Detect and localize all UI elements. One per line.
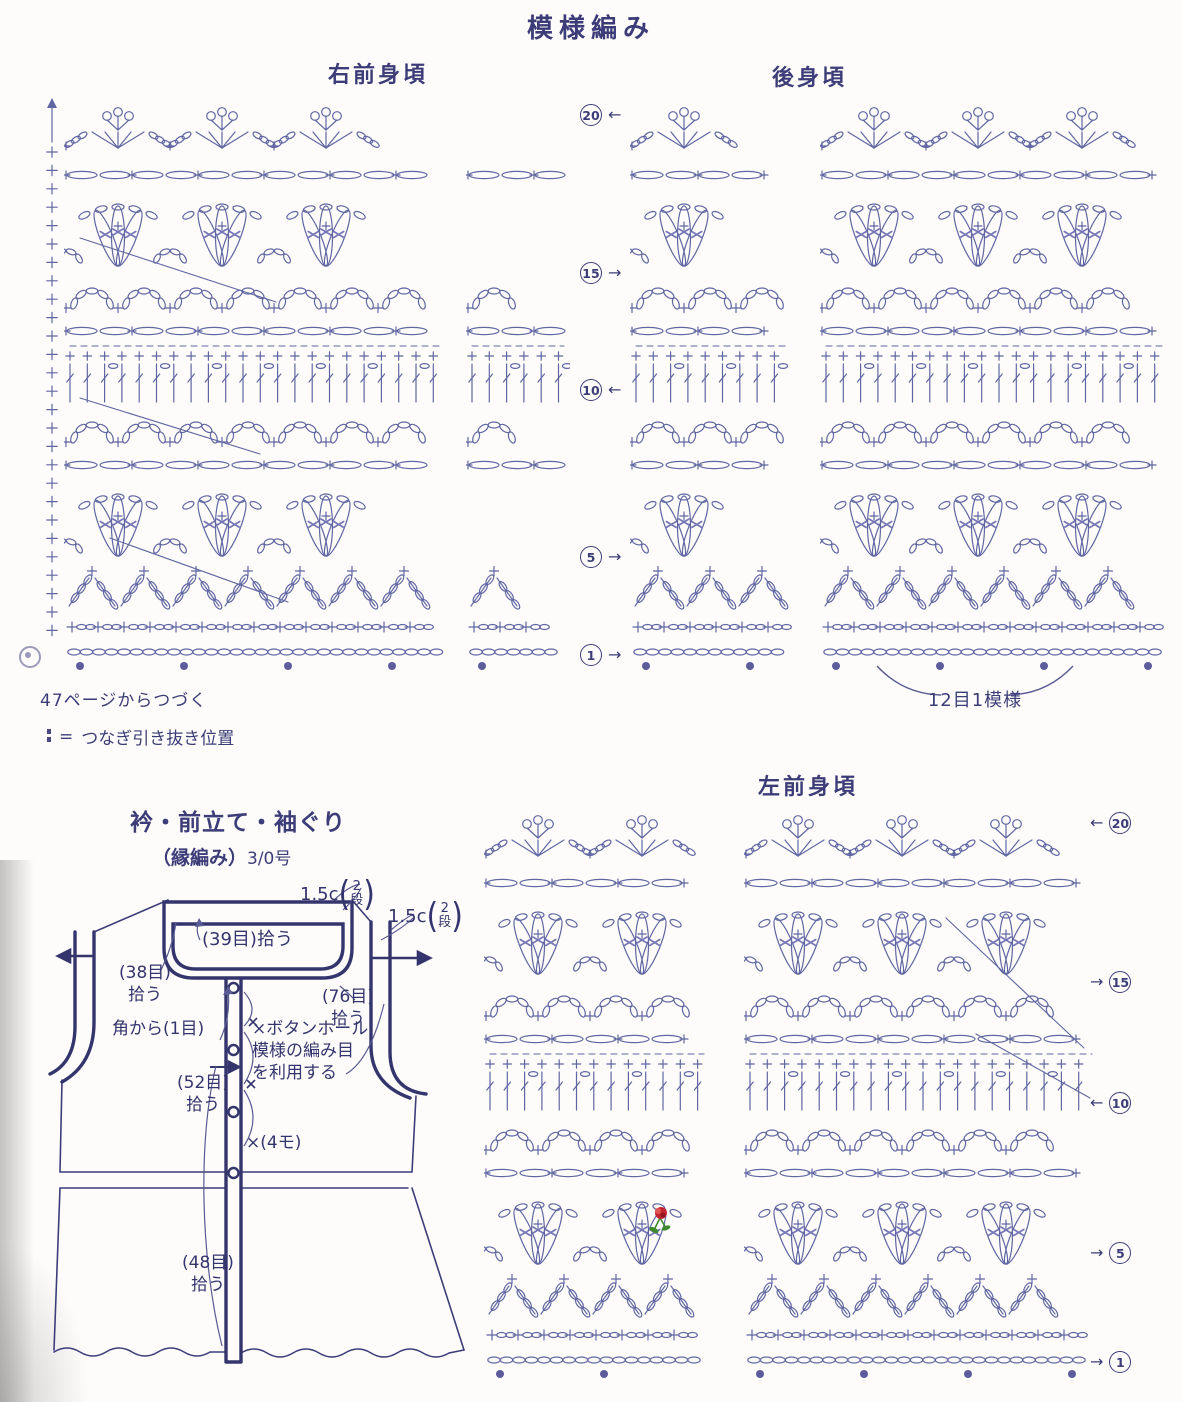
neck-band-dan: 段 [350,894,363,908]
arrow-left-icon: ← [608,107,621,123]
pickup-39-label: (39目)拾う [202,928,293,951]
row-number: 20 [1109,812,1131,834]
row-number: 1 [1109,1351,1131,1373]
from-corner-label: 角から(1目) [112,1018,204,1040]
pickup-38-count: (38目) [119,963,171,983]
pickup-48-verb: 拾う [191,1275,225,1295]
row-marker-15: 15→ [580,262,621,284]
arrow-right-icon: → [608,549,621,565]
section-label-left-front: 左前身頃 [758,769,858,801]
paren-open: ( [427,901,439,932]
row-number: 20 [580,104,602,126]
pickup-48-label: (48目) 拾う [168,1252,248,1296]
arrow-right-icon: → [1090,1245,1103,1261]
row-marker-10: ←10 [1090,1092,1131,1114]
pickup-52-label: (52目) 拾う [166,1072,240,1116]
row-number: 15 [580,262,602,284]
right-arrowhead-icon [418,952,430,964]
repeat-note: 12目1模様 [855,686,1095,712]
row-start-mark [19,646,41,668]
arm-band-size: 1.5c(2段) [388,902,463,931]
row-number: 10 [580,379,602,401]
arrow-right-icon: → [608,647,621,663]
neck-band-size: 1.5c(2段) [300,880,375,909]
section-label-right-front: 右前身頃 [328,57,428,89]
crochet-chart-back [626,86,1172,690]
paren-close: ) [363,879,375,910]
arrow-left-icon: ← [1090,1095,1103,1111]
row-marker-10: 10← [580,379,621,401]
arm-band-cm: 1.5c [388,906,427,927]
arrow-right-icon: → [1090,1354,1103,1370]
placket-arrowhead-icon [229,1062,239,1072]
edging-subtitle: （縁編み）3/0号 [152,843,291,870]
button-icon [229,1045,239,1055]
buttonhole-line2: 模様の編み目 [252,1041,354,1061]
row-marker-1: 1→ [580,644,621,666]
row-marker-1: →1 [1090,1351,1131,1373]
page-title: 模様編み [0,8,1182,45]
row-markers-bottom: ←20→15←10→5→1 [1090,798,1174,1402]
buttonhole-line1: ボタンホール [266,1019,368,1039]
row-markers-top: 20←15→10←5→1→ [580,86,644,690]
arrow-right-icon: → [1090,974,1103,990]
row-marker-20: 20← [580,104,621,126]
row-number: 5 [580,546,602,568]
legend-row: = つなぎ引き抜き位置 [46,724,234,749]
paren-close: ) [451,901,463,932]
row-number: 15 [1109,971,1131,993]
buttonhole-line3: を利用する [252,1063,337,1083]
arm-band-dan: 段 [438,916,451,930]
buttonhole-note: ×ボタンホール 模様の編み目 を利用する [252,1018,368,1084]
crochet-chart-right-front [38,86,578,690]
pickup-52-count: (52目) [177,1073,229,1093]
row-marker-5: 5→ [580,546,621,568]
legend-equals: = [59,727,73,747]
x-mark: × [252,1019,266,1039]
continued-note: 47ページからつづく [40,686,207,711]
neck-band-cm: 1.5c [300,884,339,905]
row-number: 10 [1109,1092,1131,1114]
arrow-left-icon: ← [608,382,621,398]
legend-text: つなぎ引き抜き位置 [81,724,234,749]
crochet-chart-left-front [476,798,1110,1402]
button-icon [229,1168,239,1178]
edging-hook-size: 3/0号 [247,849,291,869]
pickup-38-verb: 拾う [128,985,162,1005]
button-count-label: ×(4モ) [246,1132,301,1154]
left-arrowhead-icon [58,950,70,962]
join-mark-icon [46,729,51,744]
pickup-48-count: (48目) [182,1253,234,1273]
row-marker-5: →5 [1090,1242,1131,1264]
pickup-38-label: (38目) 拾う [108,962,182,1006]
paren-open: ( [339,879,351,910]
scan-shadow-left [0,860,34,1402]
row-number: 1 [580,644,602,666]
pickup-76-count: (76目) [322,987,374,1007]
right-armhole-band-outer [390,922,426,1094]
pickup-52-verb: 拾う [186,1095,220,1115]
arrow-right-icon: → [608,265,621,281]
arm-band-rows: 2 [441,902,449,916]
edging-subtitle-paren: （縁編み） [152,847,247,869]
row-marker-15: →15 [1090,971,1131,993]
pattern-book-page: 模様編み 右前身頃 後身頃 左前身頃 20←15→10←5→1→ ←20→15←… [0,0,1182,1402]
row-marker-20: ←20 [1090,812,1131,834]
row-number: 5 [1109,1242,1131,1264]
arrow-left-icon: ← [1090,815,1103,831]
neck-band-rows: 2 [353,880,361,894]
edging-title: 衿・前立て・袖ぐり [130,803,346,837]
rose-mark-icon [646,1204,678,1238]
